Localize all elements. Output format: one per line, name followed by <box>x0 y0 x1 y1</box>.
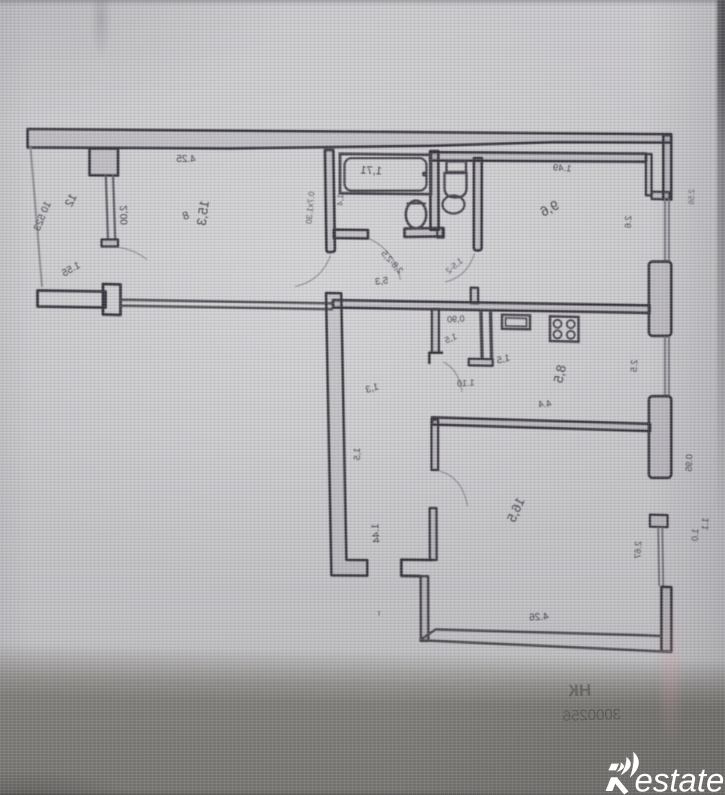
svg-text:1,5-2: 1,5-2 <box>443 256 464 276</box>
svg-text:1.1: 1.1 <box>700 517 710 530</box>
svg-text:1,5: 1,5 <box>443 331 459 345</box>
svg-text:8: 8 <box>181 209 191 222</box>
svg-text:НК: НК <box>568 681 592 701</box>
svg-text:estate: estate <box>635 762 725 795</box>
svg-text:2,8-2,5: 2,8-2,5 <box>379 248 405 276</box>
svg-text:т: т <box>377 609 381 618</box>
svg-text:8,5: 8,5 <box>551 364 569 385</box>
svg-text:1.49: 1.49 <box>553 162 572 174</box>
svg-text:2.5: 2.5 <box>629 359 639 372</box>
svg-text:1.55: 1.55 <box>60 260 83 279</box>
svg-text:12: 12 <box>63 192 79 209</box>
svg-text:9,6: 9,6 <box>538 197 562 219</box>
svg-text:1.0: 1.0 <box>690 528 700 541</box>
svg-text:1.44: 1.44 <box>370 523 383 544</box>
svg-text:16,5: 16,5 <box>504 495 528 524</box>
svg-text:1,5: 1,5 <box>496 353 512 367</box>
svg-text:2.67: 2.67 <box>633 541 644 559</box>
svg-text:4.26: 4.26 <box>528 612 548 624</box>
svg-text:4.25: 4.25 <box>176 154 196 165</box>
svg-text:2.6: 2.6 <box>623 215 633 228</box>
svg-text:15,3: 15,3 <box>194 199 212 226</box>
svg-text:5,3: 5,3 <box>374 275 389 288</box>
svg-text:4.4: 4.4 <box>538 399 552 411</box>
svg-text:1,4: 1,4 <box>335 194 345 206</box>
svg-text:2.56: 2.56 <box>687 189 697 205</box>
svg-text:1.10: 1.10 <box>457 377 475 388</box>
svg-text:3000256: 3000256 <box>562 706 621 725</box>
svg-text:1,5: 1,5 <box>352 448 362 461</box>
svg-text:2,00: 2,00 <box>119 205 131 225</box>
svg-text:0.7x1.30: 0.7x1.30 <box>304 191 317 225</box>
svg-text:0.95: 0.95 <box>684 454 695 472</box>
svg-text:10 523: 10 523 <box>32 200 54 233</box>
svg-text:1,3: 1,3 <box>364 381 380 396</box>
svg-text:1,71: 1,71 <box>360 164 382 177</box>
svg-text:0,90: 0,90 <box>447 314 465 325</box>
